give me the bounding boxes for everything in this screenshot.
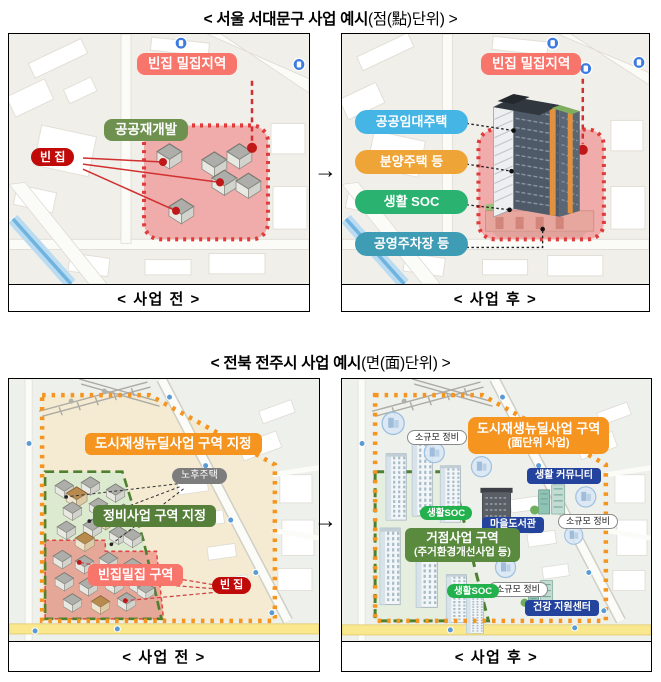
pointer-dot <box>64 495 68 499</box>
connector-dot <box>540 227 545 232</box>
panel-seoul-before: 빈집 밀집지역 공공재개발 빈 집 < 사업 전 > <box>8 33 310 312</box>
label-newdeal-zone: 도시재생뉴딜사업 구역 (面단위 사업) <box>468 417 609 454</box>
map-jeonju-before: 도시재생뉴딜사업 구역 지정 노후주택 정비사업 구역 지정 빈집밀집 구역 빈… <box>9 379 319 641</box>
vacant-dot <box>216 178 224 186</box>
panel-jeonju-after: 도시재생뉴딜사업 구역 (面단위 사업) 소규모 정비 소규모 정비 소규모 정… <box>341 378 652 672</box>
parking-icon <box>580 62 592 74</box>
vacant-dot <box>159 158 167 166</box>
label-vacant-house: 빈 집 <box>212 577 251 594</box>
map-seoul-before: 빈집 밀집지역 공공재개발 빈 집 <box>9 34 309 284</box>
section1-title-main: < 서울 서대문구 사업 예시 <box>204 11 368 28</box>
label-hub-zone-line1: 거점사업 구역 <box>414 531 511 546</box>
vacant-dot <box>123 598 128 603</box>
label-living-soc: 생활SOC <box>447 584 499 598</box>
parking-icon <box>175 37 187 49</box>
label-old-housing: 노후주택 <box>172 468 227 484</box>
label-living-soc: 생활 SOC <box>355 190 468 214</box>
map-seoul-after: 빈집 밀집지역 공공임대주택 분양주택 등 생활 SOC 공영주차장 등 <box>342 34 649 284</box>
vacant-dot <box>172 207 180 215</box>
section2-title-paren: (면(面)단위) > <box>361 355 450 372</box>
rail-node <box>69 399 74 404</box>
label-living-soc: 생활SOC <box>420 506 472 520</box>
label-vacant-dense-area: 빈집 밀집지역 <box>481 53 581 75</box>
panel-seoul-after: 빈집 밀집지역 공공임대주택 분양주택 등 생활 SOC 공영주차장 등 < 사… <box>341 33 650 312</box>
parking-icon <box>293 58 305 70</box>
label-public-parking: 공영주차장 등 <box>355 232 468 256</box>
caption-after-2: < 사업 후 > <box>342 641 651 671</box>
label-vacant-house: 빈 집 <box>31 148 74 166</box>
label-newdeal-zone: 도시재생뉴딜사업 구역 지정 <box>85 433 262 455</box>
section2-title-main: < 전북 전주시 사업 예시 <box>211 355 361 372</box>
caption-before-2: < 사업 전 > <box>9 641 319 671</box>
parking-icon <box>547 37 559 49</box>
section1-title: < 서울 서대문구 사업 예시(점(點)단위) > <box>0 7 661 29</box>
label-living-community: 생활 커뮤니티 <box>527 468 601 484</box>
pointer-dot <box>110 542 114 546</box>
map-jeonju-after: 도시재생뉴딜사업 구역 (面단위 사업) 소규모 정비 소규모 정비 소규모 정… <box>342 379 651 641</box>
label-hub-zone-line2: (주거환경개선사업 등) <box>414 546 511 559</box>
label-public-rental-housing: 공공임대주택 <box>355 110 468 134</box>
label-hub-zone: 거점사업 구역 (주거환경개선사업 등) <box>405 528 520 562</box>
label-health-center: 건강 지원센터 <box>525 600 599 616</box>
section2-title: < 전북 전주시 사업 예시(면(面)단위) > <box>0 351 661 373</box>
highrise-building <box>485 94 593 237</box>
connector-dot <box>511 128 516 133</box>
label-small-scale-maintenance: 소규모 정비 <box>558 514 618 529</box>
label-vacant-dense-zone: 빈집밀집 구역 <box>88 564 183 586</box>
panel-jeonju-before: 도시재생뉴딜사업 구역 지정 노후주택 정비사업 구역 지정 빈집밀집 구역 빈… <box>8 378 320 672</box>
figure-page: < 서울 서대문구 사업 예시(점(點)단위) > <box>0 0 661 682</box>
caption-before-1: < 사업 전 > <box>9 284 309 311</box>
label-maintenance-zone: 정비사업 구역 지정 <box>93 505 216 527</box>
label-sale-housing: 분양주택 등 <box>355 150 468 174</box>
label-newdeal-zone-line2: (面단위 사업) <box>477 437 600 450</box>
label-public-redevelopment: 공공재개발 <box>104 119 188 141</box>
before-after-arrow: → <box>310 157 341 184</box>
label-vacant-dense-area: 빈집 밀집지역 <box>137 53 237 75</box>
connector-dot <box>509 169 514 174</box>
section1-title-paren: (점(點)단위) > <box>368 11 457 28</box>
connector-dot <box>507 207 512 212</box>
label-small-scale-maintenance: 소규모 정비 <box>407 430 467 445</box>
rail-node <box>402 399 407 404</box>
pointer-dot <box>87 519 91 523</box>
vacant-dot <box>77 560 82 565</box>
before-after-arrow: → <box>310 507 341 534</box>
parking-icon <box>633 56 645 68</box>
caption-after-1: < 사업 후 > <box>342 284 649 311</box>
label-newdeal-zone-line1: 도시재생뉴딜사업 구역 <box>477 421 600 437</box>
